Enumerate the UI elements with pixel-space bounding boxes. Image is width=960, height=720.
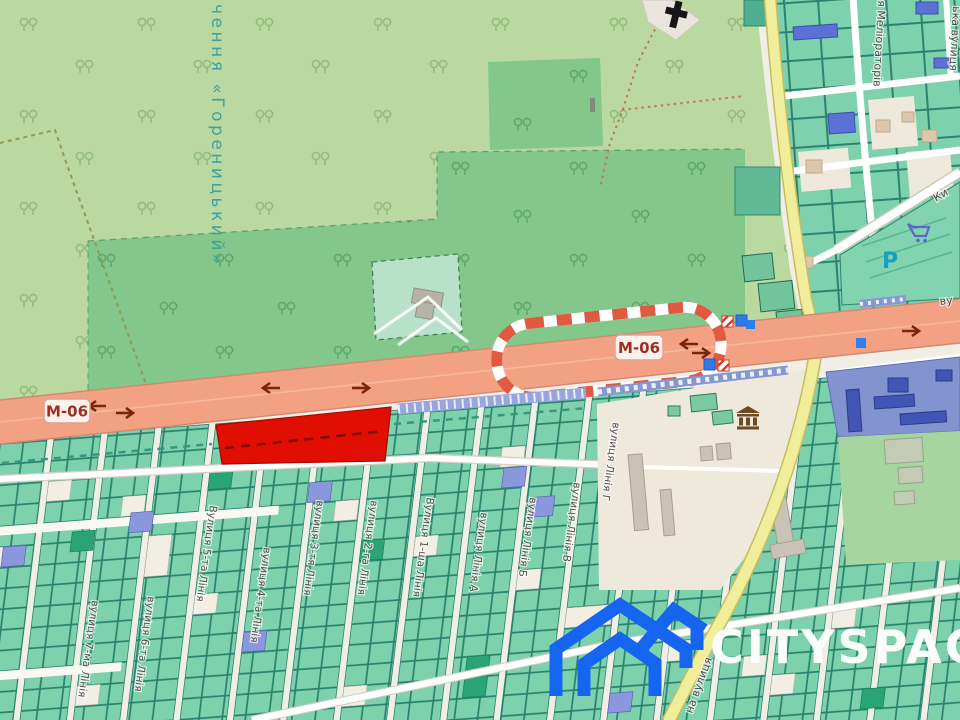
building bbox=[916, 2, 938, 14]
m06-shield-left: М-06 bbox=[44, 399, 90, 423]
map-svg: P чення «Гореницький» bbox=[0, 0, 960, 720]
svg-text:М-06: М-06 bbox=[46, 403, 88, 421]
forest-inner-plot bbox=[372, 254, 468, 345]
building bbox=[793, 24, 838, 40]
map-canvas[interactable]: P чення «Гореницький» bbox=[0, 0, 960, 720]
building bbox=[876, 120, 890, 132]
protected-area-label: чення «Гореницький» bbox=[207, 4, 227, 268]
parking-strip-north bbox=[860, 299, 906, 304]
monument-icon bbox=[590, 98, 595, 112]
green-compound bbox=[735, 167, 780, 215]
woods-patch-north bbox=[488, 58, 603, 150]
building bbox=[922, 130, 937, 142]
greenfield-zone bbox=[838, 431, 960, 565]
map-marker-blue bbox=[746, 320, 755, 329]
building bbox=[902, 112, 914, 122]
street-label-vu: ву bbox=[939, 294, 954, 308]
parking-icon: P bbox=[882, 249, 898, 274]
m06-shield-right: М-06 bbox=[615, 335, 663, 360]
watermark-text: CITYSPACE bbox=[710, 620, 960, 674]
building bbox=[806, 160, 822, 173]
building bbox=[828, 112, 855, 134]
svg-text:М-06: М-06 bbox=[618, 339, 660, 357]
map-marker-blue bbox=[856, 338, 866, 348]
